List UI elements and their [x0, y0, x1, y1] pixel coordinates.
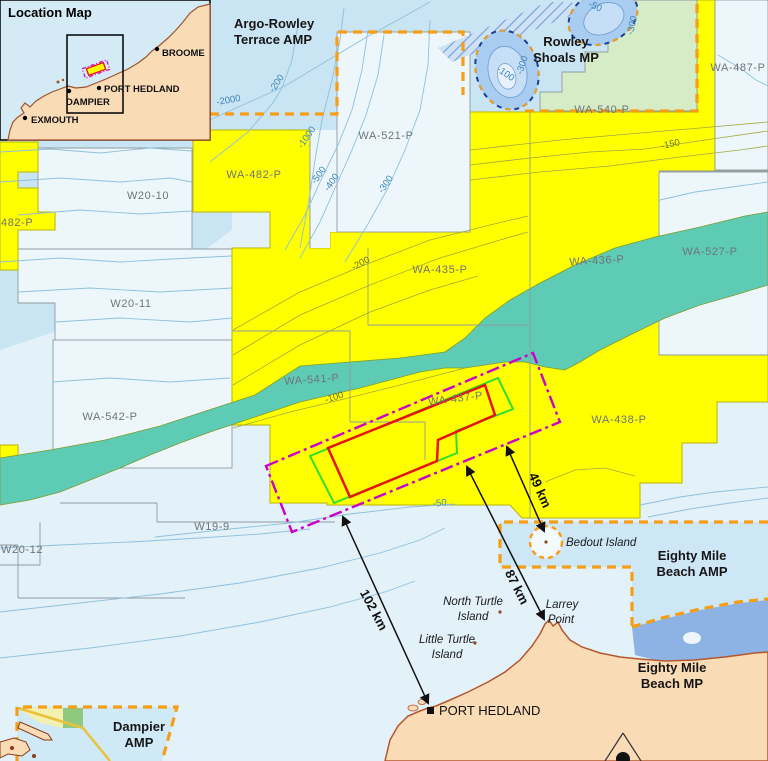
label-rowley-shoals-mp-2: Shoals MP	[533, 50, 599, 65]
inset-title: Location Map	[8, 5, 92, 20]
island-near-port	[408, 705, 418, 711]
inset-town-label: EXMOUTH	[31, 115, 79, 126]
label-dampier-amp: Dampier	[113, 719, 165, 734]
inset-town-dot	[155, 47, 159, 51]
inset-town-label: DAMPIER	[66, 97, 110, 108]
label-argo-rowley-amp-2: Terrace AMP	[234, 32, 312, 47]
label-wa-542-p: WA-542-P	[82, 411, 137, 423]
label-wa-487-p: WA-487-P	[710, 62, 765, 74]
label-eighty-mile-beach-mp: Eighty Mile	[638, 660, 707, 675]
island-near-port-2	[418, 700, 426, 705]
label-wa-482-p-west: 482-P	[1, 217, 33, 229]
map-page: 102 km87 km49 km 482-PWA-482-PWA-521-PWA…	[0, 0, 768, 761]
label-wa-438-p: WA-438-P	[591, 414, 646, 426]
north-turtle-island-dot	[498, 610, 501, 613]
label-w20-10: W20-10	[127, 190, 169, 202]
label-eighty-mile-beach-amp-2: Beach AMP	[656, 564, 727, 579]
block-wa-487-p	[715, 0, 768, 170]
label-w20-11: W20-11	[110, 298, 151, 310]
label-north-turtle-island-2: Island	[458, 611, 489, 623]
coastal-inlet	[683, 632, 701, 644]
label-wa-435-p: WA-435-P	[412, 264, 467, 276]
inset-town-dot	[67, 89, 71, 93]
label-wa-521-p: WA-521-P	[358, 130, 413, 142]
dampier-islet-2	[32, 754, 36, 758]
inset-islands-2	[62, 79, 64, 81]
label-argo-rowley-amp: Argo-Rowley	[234, 16, 315, 31]
label-little-turtle-island-2: Island	[432, 649, 463, 661]
label-little-turtle-island: Little Turtle	[419, 634, 475, 646]
label-larrey-point: Larrey	[546, 599, 580, 611]
label-eighty-mile-beach-amp: Eighty Mile	[658, 548, 727, 563]
inset-town-dot	[97, 86, 101, 90]
map-canvas: 102 km87 km49 km 482-PWA-482-PWA-521-PWA…	[0, 0, 768, 761]
dampier-islet	[10, 746, 14, 750]
contour-label-50: -50	[432, 497, 447, 509]
inset-town-label: PORT HEDLAND	[104, 84, 180, 95]
label-north-turtle-island: North Turtle	[443, 596, 503, 608]
port-hedland-marker	[427, 707, 434, 714]
bedout-island-dot	[544, 540, 547, 543]
label-port-hedland: PORT HEDLAND	[439, 703, 540, 718]
inset-islands	[57, 81, 60, 84]
label-wa-527-p: WA-527-P	[682, 246, 737, 258]
label-eighty-mile-beach-mp-2: Beach MP	[641, 676, 703, 691]
location-map-inset: Location Map BROOMEPORT HEDLANDDAMPIEREX…	[0, 0, 210, 140]
label-bedout-island: Bedout Island	[566, 537, 637, 549]
label-wa-540-p: WA-540-P	[574, 104, 629, 116]
label-dampier-amp-2: AMP	[125, 735, 154, 750]
label-w19-9: W19-9	[194, 521, 229, 533]
label-w20-12: W20-12	[1, 544, 43, 556]
label-wa-482-p: WA-482-P	[226, 169, 281, 181]
label-larrey-point-2: Point	[548, 614, 575, 626]
inset-town-dot	[23, 116, 27, 120]
label-rowley-shoals-mp: Rowley	[543, 34, 589, 49]
inset-town-label: BROOME	[162, 48, 205, 59]
